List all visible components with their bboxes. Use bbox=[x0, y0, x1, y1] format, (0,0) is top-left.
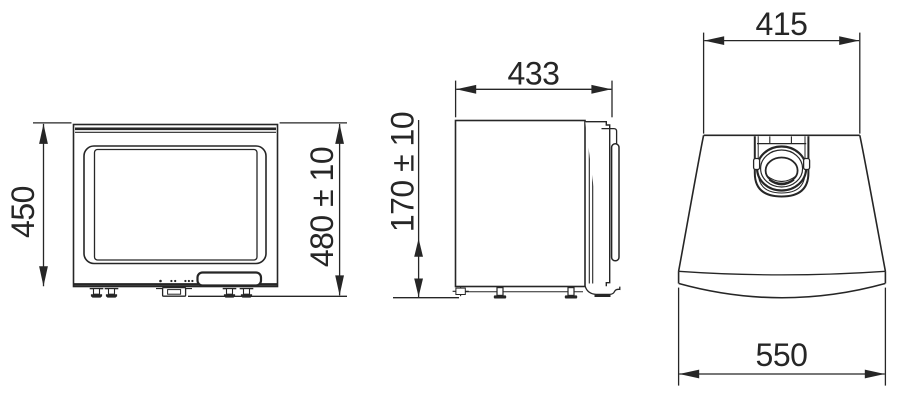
side-foot bbox=[565, 288, 577, 299]
indicator-dots bbox=[159, 280, 193, 283]
door-window-glass bbox=[95, 150, 258, 261]
drawing-root: 450 480 ± 10 bbox=[5, 6, 885, 386]
right-side bbox=[860, 135, 886, 271]
front-foot bbox=[223, 289, 237, 298]
latch-housing bbox=[163, 288, 186, 297]
indicator-dot bbox=[188, 280, 190, 282]
door-handle-side bbox=[612, 144, 619, 261]
door-bottom-trim bbox=[585, 286, 620, 294]
left-side bbox=[679, 135, 704, 271]
side-height-dimension: 170 ± 10 bbox=[385, 112, 460, 298]
indicator-dot bbox=[159, 280, 162, 283]
three-view-technical-drawing: 450 480 ± 10 bbox=[0, 0, 900, 400]
depth-label: 433 bbox=[508, 56, 560, 92]
front-foot bbox=[240, 289, 254, 298]
collar-clip-left bbox=[754, 159, 760, 170]
bottom-latch bbox=[156, 288, 192, 297]
door-window-frame bbox=[84, 146, 266, 264]
top-body bbox=[679, 135, 886, 297]
top-view: 415 550 bbox=[679, 6, 886, 386]
side-base bbox=[453, 286, 583, 298]
indicator-dot bbox=[184, 280, 186, 282]
door-profile bbox=[585, 122, 620, 296]
front-height-dimension: 450 bbox=[5, 123, 72, 286]
arrow-down bbox=[414, 279, 423, 297]
front-lip-curve bbox=[679, 284, 885, 298]
top-back-width-label: 415 bbox=[756, 6, 808, 42]
flue-collar bbox=[754, 136, 810, 196]
technical-drawing-canvas: 450 480 ± 10 bbox=[0, 0, 900, 400]
collar-clip-right bbox=[804, 159, 810, 170]
top-back-width-dimension: 415 bbox=[704, 6, 860, 134]
front-view: 450 480 ± 10 bbox=[5, 123, 347, 298]
front-body bbox=[74, 125, 278, 298]
indicator-dot bbox=[170, 280, 172, 282]
side-body-outline bbox=[456, 121, 586, 287]
indicator-dot bbox=[174, 280, 176, 282]
side-body bbox=[453, 121, 620, 299]
front-height-label: 450 bbox=[5, 186, 41, 238]
front-total-height-label: 480 ± 10 bbox=[304, 147, 340, 267]
front-body-outline bbox=[74, 125, 278, 287]
front-foot bbox=[90, 289, 104, 298]
door-handle-front bbox=[198, 273, 262, 286]
indicator-dot bbox=[191, 280, 193, 282]
top-front-width-dimension: 550 bbox=[679, 288, 886, 386]
top-front-width-label: 550 bbox=[756, 337, 808, 373]
depth-dimension: 433 bbox=[456, 56, 612, 118]
side-view: 433 170 ± 10 bbox=[385, 56, 620, 299]
side-height-label: 170 ± 10 bbox=[385, 112, 421, 232]
front-crease bbox=[679, 271, 886, 275]
side-foot bbox=[494, 288, 506, 299]
arrow-up bbox=[414, 239, 423, 257]
mount-bracket bbox=[456, 288, 465, 294]
front-foot bbox=[105, 289, 119, 298]
